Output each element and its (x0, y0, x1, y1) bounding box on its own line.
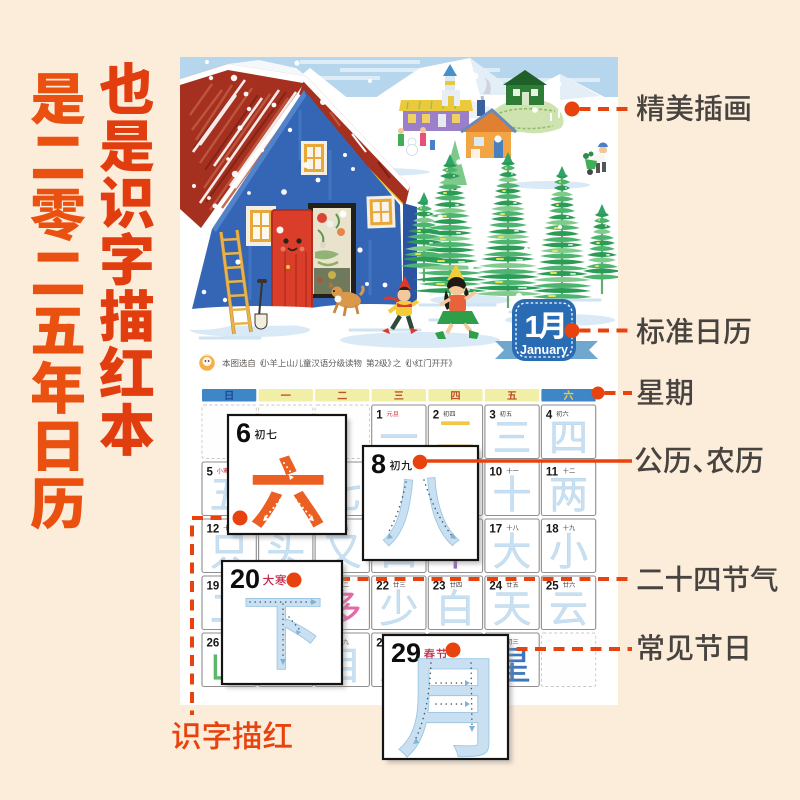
svg-text:5: 5 (207, 467, 214, 479)
svg-text:29: 29 (391, 638, 421, 668)
svg-text:6: 6 (236, 418, 251, 448)
svg-text:4: 4 (546, 410, 553, 422)
svg-text:23: 23 (433, 581, 446, 593)
svg-text:3: 3 (489, 410, 495, 422)
svg-text:January: January (520, 343, 568, 357)
svg-text:2: 2 (433, 410, 439, 422)
svg-text:1: 1 (524, 309, 541, 344)
svg-text:18: 18 (546, 524, 559, 536)
svg-text:10: 10 (489, 467, 502, 479)
svg-text:26: 26 (207, 638, 220, 650)
svg-text:1: 1 (376, 410, 383, 422)
svg-text:25: 25 (546, 581, 559, 593)
svg-text:20: 20 (230, 564, 260, 594)
svg-text:19: 19 (207, 581, 220, 593)
svg-text:12: 12 (207, 524, 220, 536)
svg-text:8: 8 (371, 449, 386, 479)
svg-text:22: 22 (376, 581, 389, 593)
svg-text:17: 17 (489, 524, 502, 536)
svg-text:11: 11 (546, 467, 559, 479)
svg-text:24: 24 (489, 581, 502, 593)
